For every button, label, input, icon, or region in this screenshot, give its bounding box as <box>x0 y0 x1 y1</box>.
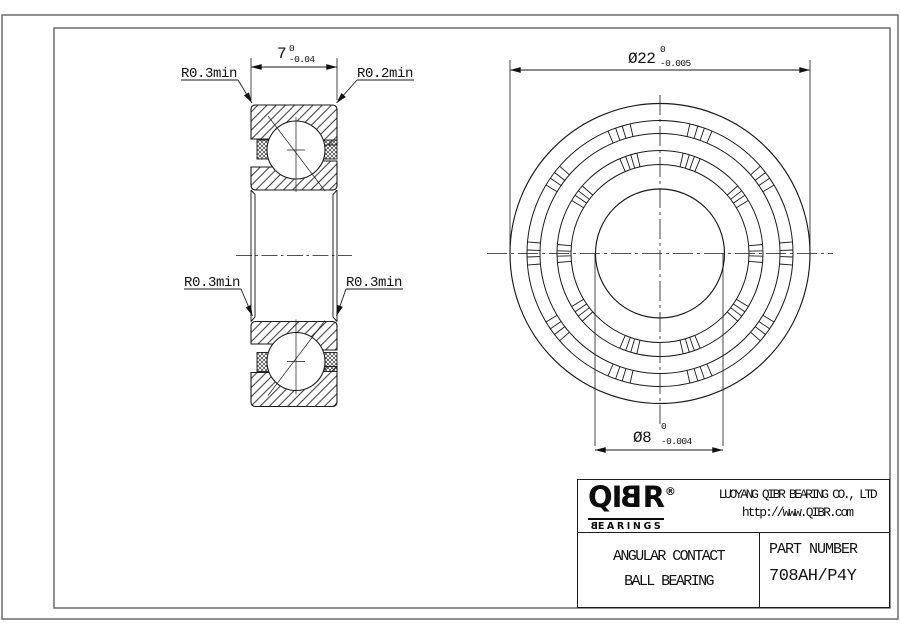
cage-pocket-edge <box>626 156 631 169</box>
cage-pocket-edge <box>546 315 557 322</box>
title-block-header-row: QIBR® BEARINGS LUOYANG QIBR BEARING CO.,… <box>578 480 889 533</box>
width-dim-nominal: 7 <box>277 45 286 63</box>
side-section-view <box>236 105 352 407</box>
fillet-leaders: R0.3min R0.2min R0.3min R0.3min <box>181 66 414 316</box>
od-dim-upper-tol: 0 <box>660 44 666 55</box>
cage-pocket-edge <box>700 367 704 379</box>
cage-pocket-edge <box>582 186 593 195</box>
cage-pocket-edge <box>694 369 698 381</box>
registered-trademark-icon: ® <box>665 485 675 498</box>
cage-pocket-edge <box>622 126 626 138</box>
cage-pocket-edge <box>759 178 770 185</box>
cage-pocket-edge <box>637 153 640 167</box>
cage-pocket-edge <box>749 261 763 262</box>
bore-dim-upper-tol: 0 <box>661 421 667 432</box>
cage-pocket-edge <box>755 327 765 335</box>
cage-pocket-edge <box>582 312 593 321</box>
cage-pocket-edge <box>555 327 565 335</box>
cage-pocket-edge <box>550 178 561 185</box>
cage-pocket-edge <box>749 245 763 246</box>
cage-pocket-edge <box>546 185 557 192</box>
front-view <box>487 95 833 424</box>
cage-pocket-edge <box>685 155 689 169</box>
company-website: http://www.QIBR.com <box>705 505 889 520</box>
logo-text-pre: QI <box>588 480 621 514</box>
cage-pocket-edge <box>560 332 570 341</box>
od-dim-lower-tol: -0.005 <box>660 58 692 69</box>
part-number-value: 708AH/P4Y <box>769 567 889 586</box>
bore-dim-lower-tol: -0.004 <box>661 436 693 447</box>
cage-pocket-edge <box>626 337 631 350</box>
bearings-mirrored-b: B <box>588 521 598 532</box>
cage-pocket-edge <box>687 124 690 137</box>
cage-pocket-edge <box>557 261 571 262</box>
cage-pocket-edge <box>780 264 793 265</box>
bore-dimension: Ø8 0 -0.004 <box>595 254 723 451</box>
width-dimension: 7 0 -0.04 <box>251 43 337 100</box>
cage-pocket-edge <box>695 159 700 172</box>
logo-mirrored-b: B <box>621 482 642 513</box>
cage-pocket-edge <box>736 201 748 208</box>
cage-pocket-edge <box>620 159 625 172</box>
cage-pocket-edge <box>631 339 635 353</box>
cage-pocket-edge <box>528 264 541 265</box>
title-block-detail-row: ANGULAR CONTACT BALL BEARING PART NUMBER… <box>578 533 889 607</box>
cage-pocket-edge <box>755 173 765 181</box>
leader-line <box>238 80 252 103</box>
cage-pocket-edge <box>555 173 565 181</box>
cage-pocket-edge <box>637 340 640 354</box>
cage-pocket-edge <box>736 299 748 306</box>
cage-pocket-edge <box>685 339 689 353</box>
cage-pocket-edge <box>680 340 683 354</box>
cage-pocket-edge <box>763 185 774 192</box>
logo-bearings-text: BEARINGS <box>588 521 705 532</box>
cage-pocket-edge <box>763 315 774 322</box>
title-block: QIBR® BEARINGS LUOYANG QIBR BEARING CO.,… <box>577 479 890 608</box>
bore-dim-nominal: Ø8 <box>633 429 651 447</box>
leader-line <box>337 80 358 103</box>
cage-pocket-edge <box>616 128 620 140</box>
cage-pocket-edge <box>608 364 613 376</box>
cage-pocket-edge <box>550 322 561 329</box>
cage-section-top-right <box>324 140 337 159</box>
cage-pocket-edge <box>695 335 700 348</box>
cage-pocket-edge <box>622 369 626 381</box>
cage-pocket-edge <box>690 337 695 350</box>
product-description: ANGULAR CONTACT BALL BEARING <box>578 533 760 607</box>
cage-pocket-edge <box>759 322 770 329</box>
product-line1: ANGULAR CONTACT <box>578 544 759 569</box>
bearings-text-rest: EARINGS <box>598 521 663 532</box>
cage-pocket-edge <box>780 242 793 243</box>
cage-pocket-edge <box>687 370 690 383</box>
cage-pocket-edge <box>608 131 613 143</box>
part-number-cell: PART NUMBER 708AH/P4Y <box>760 533 889 607</box>
cage-pocket-edge <box>572 299 584 306</box>
cage-pocket-edge <box>572 201 584 208</box>
cage-pocket-edge <box>630 370 633 383</box>
engineering-drawing-page: { "colors": { "background": "#ffffff", "… <box>0 0 900 636</box>
cage-pocket-edge <box>528 242 541 243</box>
cage-pocket-edge <box>620 335 625 348</box>
cage-pocket-edge <box>727 312 738 321</box>
width-dim-upper-tol: 0 <box>289 43 295 54</box>
cage-pocket-edge <box>700 128 704 140</box>
cage-pocket-edge <box>694 126 698 138</box>
cage-pocket-edge <box>707 364 712 376</box>
cage-pocket-edge <box>751 166 761 175</box>
cage-pocket-edge <box>557 245 571 246</box>
cage-section-bottom-right <box>324 353 337 372</box>
cage-pocket-edge <box>690 156 695 169</box>
od-dim-nominal: Ø22 <box>628 50 655 68</box>
cage-pocket-edge <box>751 332 761 341</box>
cage-pocket-edge <box>560 166 570 175</box>
cage-pocket-edge <box>630 124 633 137</box>
logo-text-post: R <box>643 480 664 514</box>
logo-wordmark: QIBR® <box>588 482 705 519</box>
brand-logo: QIBR® BEARINGS <box>578 480 705 532</box>
company-name: LUOYANG QIBR BEARING CO., LTD <box>705 487 889 502</box>
company-info: LUOYANG QIBR BEARING CO., LTD http://www… <box>705 480 889 532</box>
part-number-label: PART NUMBER <box>769 541 889 558</box>
cage-pocket-edge <box>680 153 683 167</box>
cage-pocket-edge <box>707 131 712 143</box>
cage-pocket-edge <box>631 155 635 169</box>
leader-line <box>337 289 347 316</box>
product-line2: BALL BEARING <box>578 569 759 594</box>
cage-pocket-edge <box>727 186 738 195</box>
cage-pocket-edge <box>616 367 620 379</box>
width-dim-lower-tol: -0.04 <box>289 54 315 65</box>
